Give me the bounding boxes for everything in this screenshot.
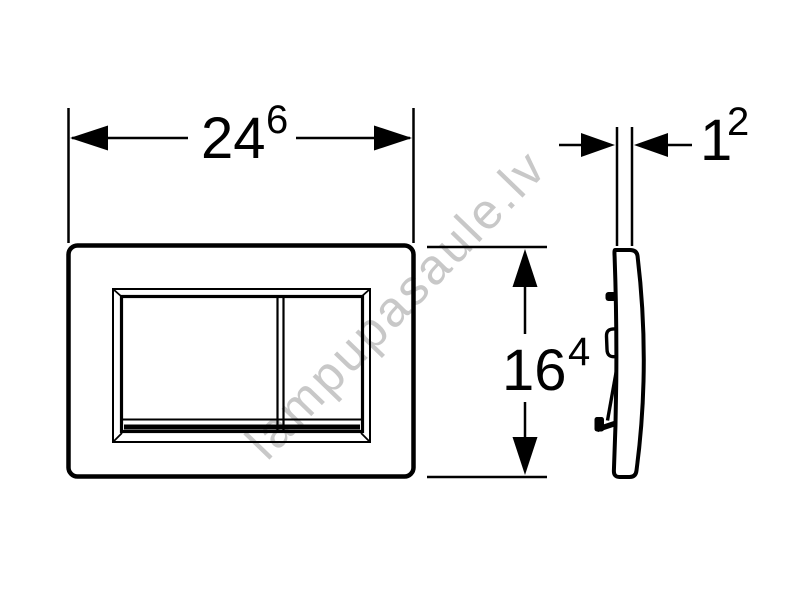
drawing-page: 24 6 1 2 bbox=[0, 0, 800, 600]
arrowhead-left bbox=[70, 126, 108, 151]
dimension-height: 16 4 bbox=[427, 247, 590, 477]
arrowhead-down bbox=[513, 437, 538, 475]
dimension-height-value: 16 bbox=[502, 338, 567, 403]
dimension-depth-superscript: 2 bbox=[727, 100, 749, 144]
side-profile bbox=[614, 250, 644, 477]
dimension-height-superscript: 4 bbox=[568, 330, 590, 374]
technical-drawing-canvas: 24 6 1 2 bbox=[0, 0, 800, 600]
arrowhead-left bbox=[581, 133, 615, 157]
flush-plate-front-view bbox=[69, 246, 414, 477]
dimension-width-superscript: 6 bbox=[266, 98, 288, 142]
dimension-width: 24 6 bbox=[69, 98, 414, 243]
dimension-depth: 1 2 bbox=[559, 100, 749, 246]
arrowhead-right bbox=[634, 133, 668, 157]
arrowhead-right bbox=[374, 126, 412, 151]
flush-plate-side-view bbox=[595, 250, 644, 477]
arrowhead-up bbox=[513, 249, 538, 287]
dimension-width-value: 24 bbox=[201, 106, 266, 171]
